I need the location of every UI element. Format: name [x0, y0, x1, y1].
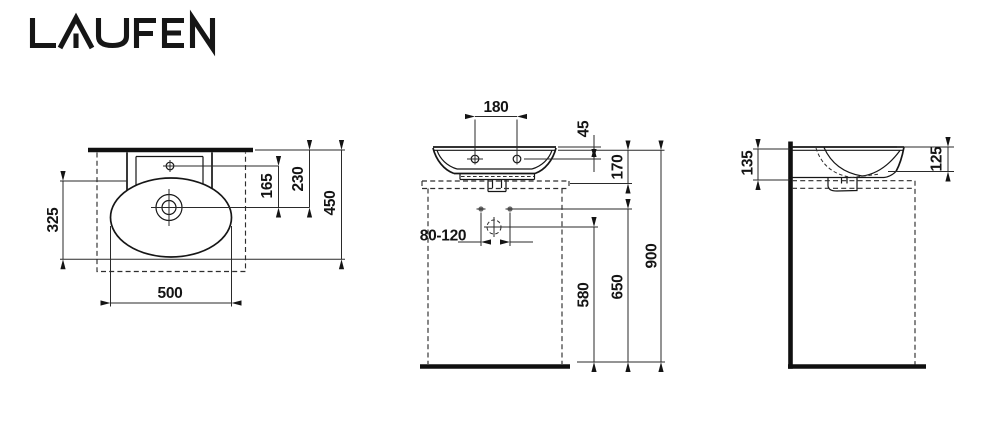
front-view: 180 45 170 80-120 580 650 900	[420, 99, 665, 367]
dim-label-450: 450	[322, 191, 339, 216]
dim-label-500: 500	[158, 285, 183, 302]
dim-label-325: 325	[45, 207, 62, 233]
laufen-logo: LAUFEN	[30, 18, 213, 63]
side-view: 135 125	[740, 142, 955, 369]
dim-label-170: 170	[610, 155, 627, 180]
installation-outline	[97, 153, 246, 272]
dim-label-45: 45	[576, 120, 593, 137]
waste-trap	[828, 178, 857, 192]
dim-label-180: 180	[484, 99, 509, 116]
dim-label-165: 165	[259, 173, 276, 199]
washbasin-dimension-drawing: LAUFEN 325 5	[0, 0, 1000, 439]
dim-label-80-120: 80-120	[420, 228, 466, 245]
dim-label-580: 580	[576, 283, 593, 308]
technical-drawing-page: LAUFEN 325 5	[0, 0, 1000, 439]
bowl-outline	[111, 178, 232, 257]
dim-label-135: 135	[740, 150, 757, 176]
top-view: 325 500 165 230 450	[45, 150, 345, 307]
dim-label-125: 125	[929, 146, 946, 172]
dim-label-650: 650	[610, 275, 627, 300]
dim-label-230: 230	[290, 167, 307, 192]
dim-label-900: 900	[644, 244, 661, 269]
